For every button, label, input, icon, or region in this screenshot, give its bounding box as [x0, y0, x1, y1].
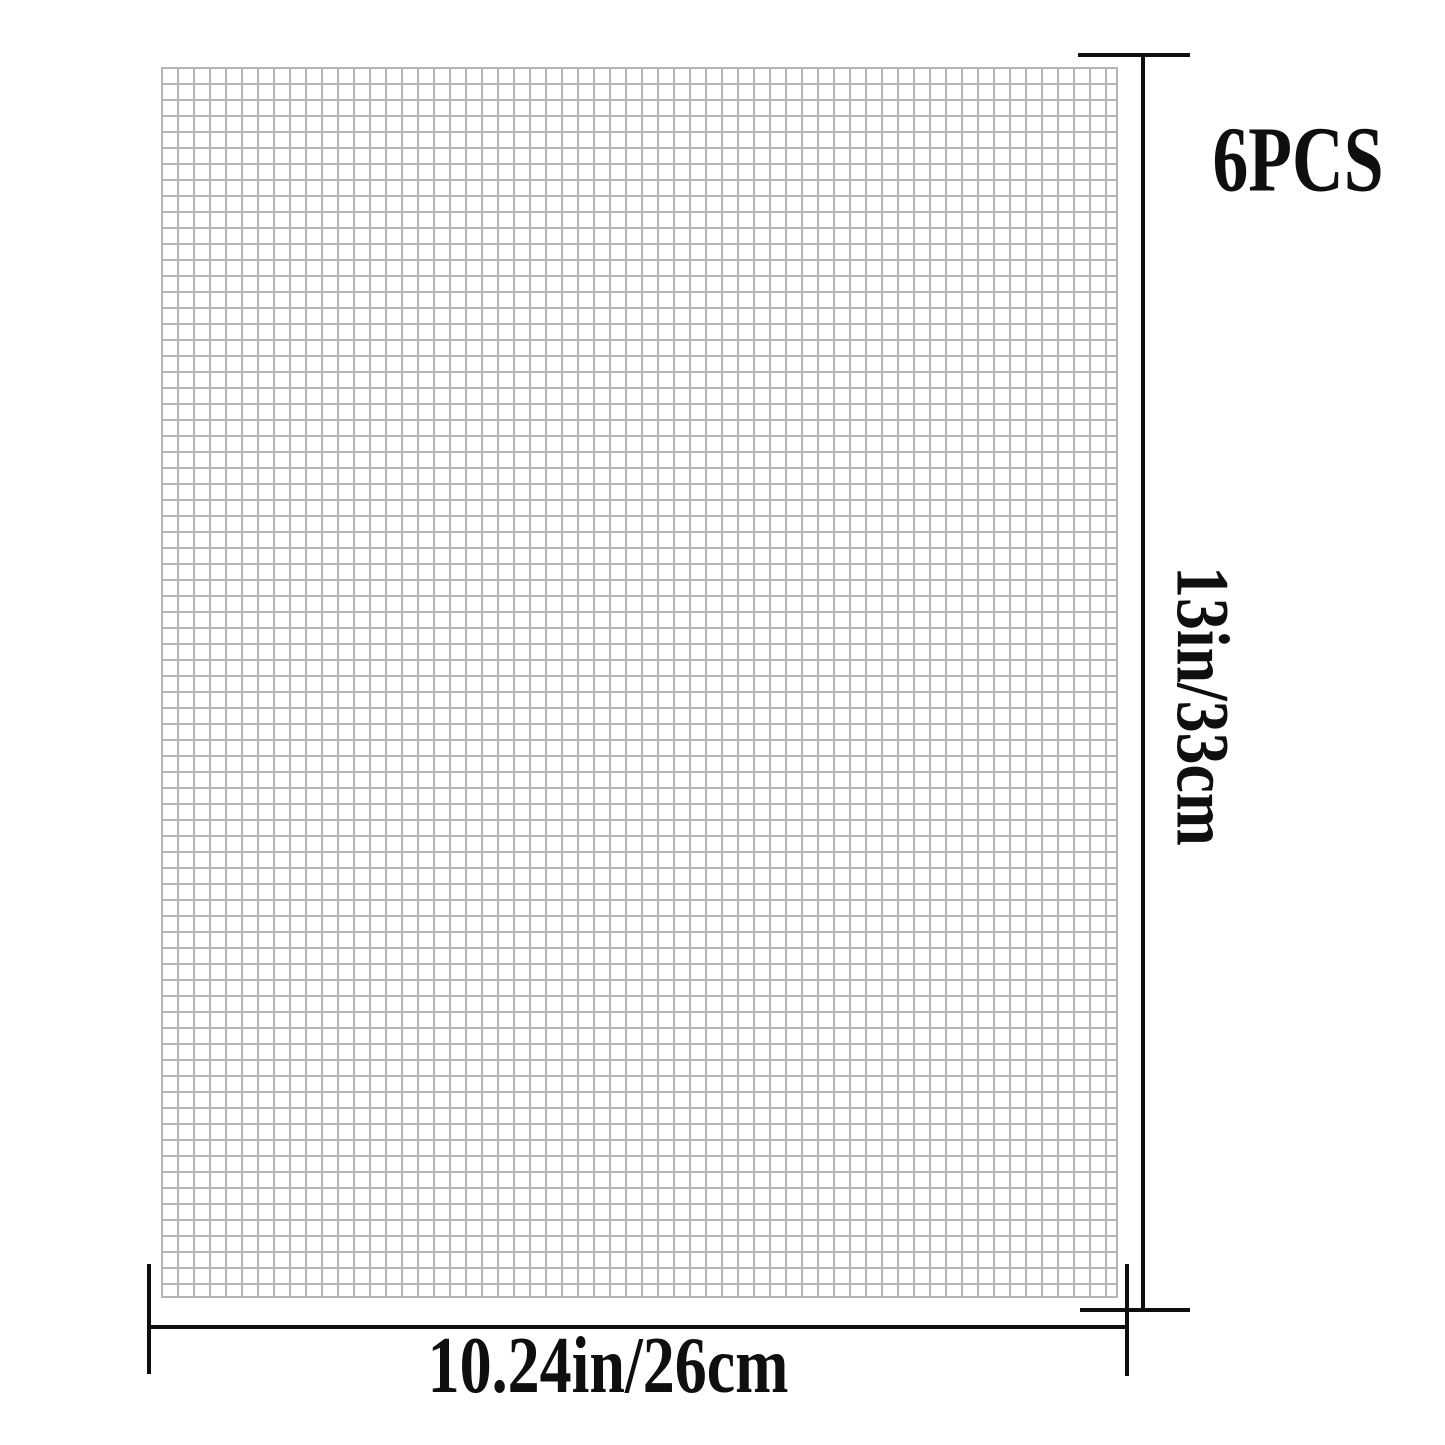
height-dimension-label: 13in/33cm [1165, 566, 1240, 846]
width-dimension-right-tick [1125, 1264, 1129, 1376]
width-dimension-label: 10.24in/26cm [428, 1326, 789, 1406]
height-dimension-top-tick [1078, 53, 1190, 57]
height-dimension-bottom-tick [1080, 1308, 1190, 1312]
width-dimension-left-tick [147, 1264, 151, 1374]
mesh-sheet-dimension-diagram: 6PCS 13in/33cm 10.24in/26cm [0, 0, 1445, 1445]
height-dimension-line [1141, 55, 1145, 1310]
pieces-count-label: 6PCS [1212, 114, 1383, 207]
mesh-grid-sheet [161, 67, 1118, 1298]
